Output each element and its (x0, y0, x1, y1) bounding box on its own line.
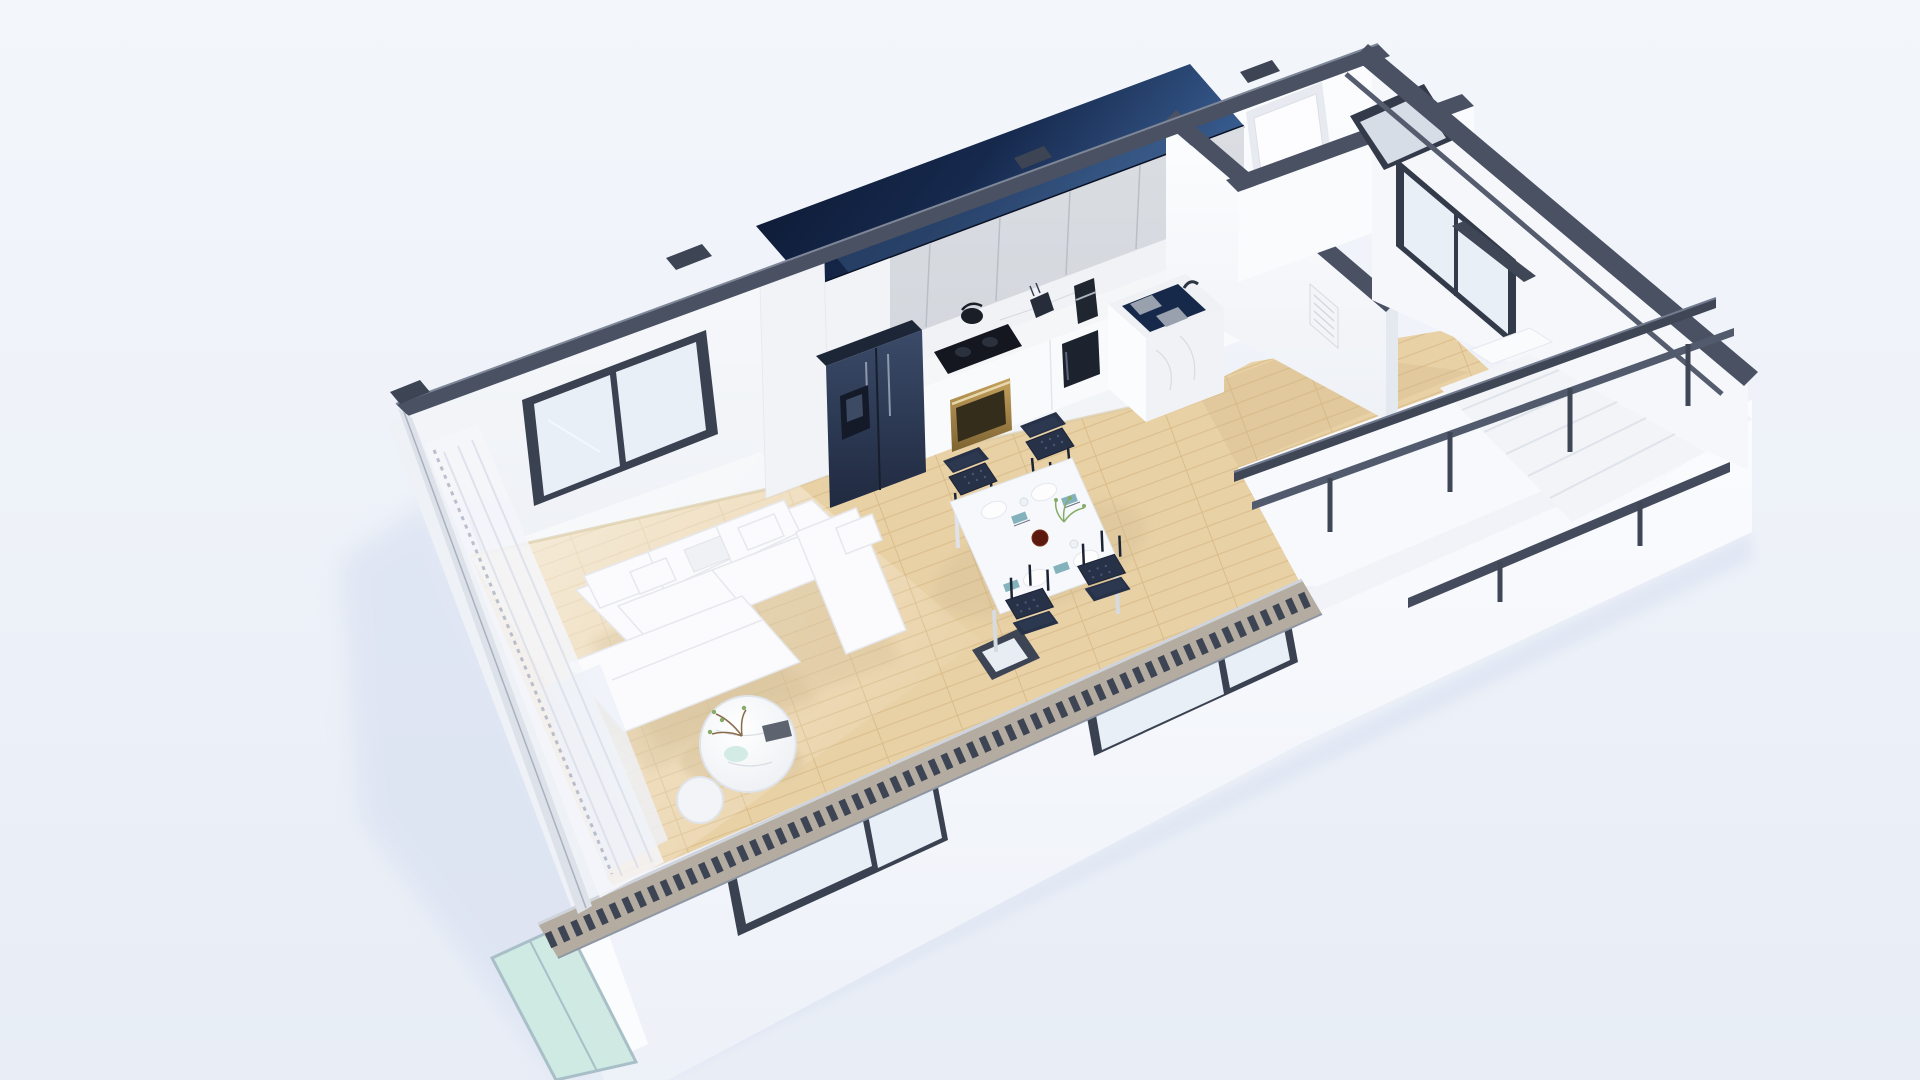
glass (1020, 498, 1028, 506)
coffee-table-small (677, 777, 723, 823)
table-leg (994, 610, 996, 652)
kettle (961, 308, 983, 324)
glass (1070, 540, 1078, 548)
burner (955, 347, 971, 357)
render-canvas (0, 0, 1920, 1080)
floorplan-scene (0, 0, 1920, 1080)
coffee-maker (1074, 278, 1098, 324)
partition-end (1386, 300, 1398, 420)
teal-dish (724, 746, 748, 762)
burner (982, 337, 998, 347)
tall-cabinet (760, 262, 830, 498)
red-bowl (1032, 530, 1048, 546)
